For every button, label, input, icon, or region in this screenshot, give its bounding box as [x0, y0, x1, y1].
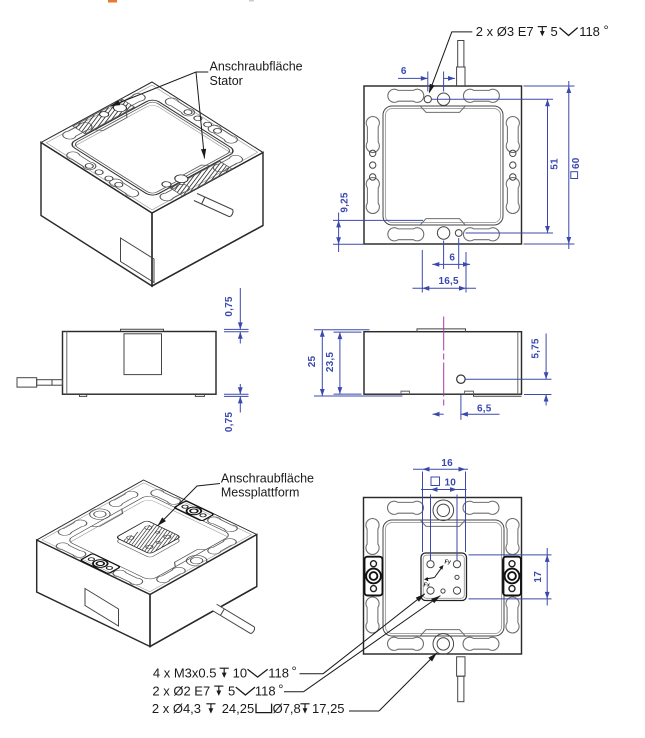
svg-text:2 x Ø3 E7: 2 x Ø3 E7: [476, 24, 534, 39]
svg-text:2 x Ø4,3: 2 x Ø4,3: [152, 701, 201, 716]
svg-text:Fy: Fy: [445, 560, 452, 566]
svg-text:Fx: Fx: [424, 583, 431, 589]
svg-text:0,75: 0,75: [224, 412, 235, 433]
svg-text:24,25: 24,25: [222, 701, 255, 716]
svg-text:6: 6: [449, 253, 455, 264]
svg-text:Stator: Stator: [210, 74, 243, 88]
svg-text:0,75: 0,75: [224, 296, 235, 317]
svg-text:5: 5: [551, 24, 558, 39]
svg-text:10: 10: [233, 665, 247, 680]
svg-text:5: 5: [228, 683, 235, 698]
svg-text:Anschraubfläche: Anschraubfläche: [210, 59, 303, 73]
svg-text:°: °: [278, 681, 283, 696]
svg-text:16,5: 16,5: [438, 276, 459, 287]
svg-text:°: °: [604, 23, 609, 38]
svg-text:17,25: 17,25: [312, 701, 345, 716]
svg-text:4 x M3x0.5: 4 x M3x0.5: [153, 665, 217, 680]
svg-text:23,5: 23,5: [325, 352, 336, 373]
svg-text:°: °: [292, 664, 297, 679]
svg-text:2 x Ø2 E7: 2 x Ø2 E7: [152, 683, 210, 698]
svg-text:10: 10: [445, 478, 457, 489]
svg-text:60: 60: [571, 157, 582, 169]
svg-text:Messplattform: Messplattform: [221, 486, 300, 500]
svg-text:16: 16: [441, 458, 453, 469]
svg-text:17: 17: [533, 571, 544, 583]
svg-text:118: 118: [579, 24, 600, 39]
svg-text:118: 118: [268, 665, 289, 680]
svg-text:51: 51: [550, 158, 561, 170]
svg-text:6: 6: [401, 66, 407, 77]
svg-text:5,75: 5,75: [530, 338, 541, 359]
svg-text:9,25: 9,25: [340, 192, 351, 213]
svg-text:6,5: 6,5: [477, 404, 492, 415]
svg-text:Anschraubfläche: Anschraubfläche: [221, 471, 314, 485]
svg-text:25: 25: [307, 356, 318, 368]
svg-text:118: 118: [255, 683, 276, 698]
svg-text:Ø7,8: Ø7,8: [273, 701, 301, 716]
